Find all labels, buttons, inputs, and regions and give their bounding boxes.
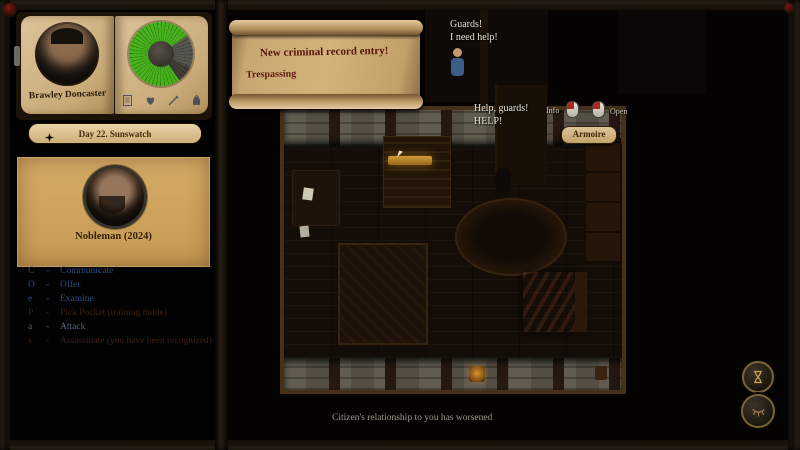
- scroll-roll-top: [229, 20, 423, 35]
- menu-label: Assassinate (you have been recognized): [60, 334, 214, 348]
- menu-label: Attack: [60, 320, 214, 334]
- side-table[interactable]: [292, 170, 340, 226]
- speech-line: Help, guards!: [474, 102, 528, 115]
- npc-guard-caller[interactable]: [450, 48, 464, 78]
- speech-line: I need help!: [450, 31, 498, 44]
- separator: -: [46, 278, 60, 292]
- menu-label: Pick Pocket (training mode): [60, 306, 214, 320]
- tooltip-open-label: Open: [610, 107, 627, 116]
- book-toolbar: [121, 94, 203, 107]
- paper-sheet[interactable]: [299, 226, 309, 238]
- bed-red-blanket[interactable]: [523, 272, 575, 332]
- speech-line: HELP!: [474, 115, 528, 128]
- speech-help: Help, guards! HELP!: [474, 102, 528, 128]
- player-portrait: [35, 22, 99, 86]
- menu-item-communicate[interactable]: C - Communicate: [18, 264, 214, 278]
- frame-corner-gem: [784, 3, 794, 13]
- mouse-split-line: [573, 102, 574, 109]
- south-wall: [284, 358, 622, 390]
- closed-eye-icon: [750, 403, 767, 420]
- frame-divider: [215, 0, 228, 450]
- bed-frame[interactable]: [575, 272, 587, 332]
- world-viewport[interactable]: New criminal record entry! Trespassing G…: [228, 10, 788, 440]
- tooltip-info-label: Info: [546, 106, 559, 115]
- menu-item-examine[interactable]: e - Examine: [18, 292, 214, 306]
- sleep-button[interactable]: [741, 394, 775, 428]
- npc-citizen[interactable]: [495, 168, 511, 194]
- wait-button[interactable]: [742, 361, 774, 393]
- crate-item[interactable]: [595, 366, 607, 380]
- work-table[interactable]: [383, 136, 451, 208]
- player-name: Brawley Doncaster: [21, 88, 114, 101]
- hourglass-icon: [750, 369, 766, 385]
- object-name-label: Armoire: [561, 126, 617, 144]
- frame-edge-right: [788, 0, 800, 450]
- left-sidebar: Brawley Doncaster: [10, 10, 215, 440]
- clock-hub: [148, 41, 174, 67]
- separator: -: [46, 334, 60, 348]
- menu-label: Offer: [60, 278, 214, 292]
- separator: -: [46, 306, 60, 320]
- game-screen: Brawley Doncaster: [0, 0, 800, 450]
- oval-rug[interactable]: [455, 198, 567, 276]
- hotkey: e: [28, 292, 46, 306]
- lantern-item[interactable]: [469, 366, 485, 382]
- hotkey: C: [28, 264, 46, 278]
- mouse-split-line: [599, 102, 600, 109]
- book-clasp-icon: [14, 46, 20, 66]
- status-message: Citizen's relationship to you has worsen…: [332, 413, 492, 423]
- hotkey: s: [28, 334, 46, 348]
- journal-icon[interactable]: [121, 94, 134, 107]
- date-banner: Day 22. Sunswatch: [28, 123, 202, 144]
- character-book: Brawley Doncaster: [16, 12, 212, 120]
- hotkey: P: [28, 306, 46, 320]
- notification-detail: Trespassing: [246, 69, 296, 81]
- quill-icon[interactable]: [167, 94, 180, 107]
- criminal-record-notification[interactable]: New criminal record entry! Trespassing: [232, 22, 420, 106]
- menu-item-assassinate[interactable]: s - Assassinate (you have been recognize…: [18, 334, 214, 348]
- frame-corner-gem: [3, 3, 17, 17]
- menu-label: Communicate: [60, 264, 214, 278]
- citizen-action-menu: C - Communicate O - Offer e - Examine P …: [18, 264, 214, 348]
- citizen-name: Nobleman (2024): [17, 231, 210, 242]
- speech-guards: Guards! I need help!: [450, 18, 498, 44]
- citizen-portrait: [83, 165, 147, 229]
- house-interior: [280, 106, 626, 394]
- paper-sheet[interactable]: [302, 187, 314, 200]
- separator: -: [46, 320, 60, 334]
- separator: -: [46, 292, 60, 306]
- selected-citizen-card: Nobleman (2024): [16, 156, 211, 268]
- speech-line: Guards!: [450, 18, 498, 31]
- heart-icon[interactable]: [144, 94, 157, 107]
- highlighted-item[interactable]: [388, 156, 432, 165]
- hotkey: O: [28, 278, 46, 292]
- mouse-open-icon: [592, 101, 605, 118]
- hotkey: a: [28, 320, 46, 334]
- scroll-roll-bottom: [229, 94, 423, 109]
- building-north-east: [618, 10, 706, 94]
- frame-edge-left: [0, 0, 10, 450]
- book-page-right: [115, 16, 208, 114]
- frame-edge-top: [0, 0, 800, 10]
- notification-title: New criminal record entry!: [260, 45, 389, 59]
- date-text: Day 22. Sunswatch: [29, 129, 201, 139]
- npc-body: [451, 58, 464, 76]
- daytime-clock: [129, 22, 193, 86]
- large-rug[interactable]: [338, 243, 428, 345]
- npc-head: [453, 48, 462, 57]
- separator: -: [46, 264, 60, 278]
- pouch-icon[interactable]: [190, 94, 203, 107]
- frame-edge-bottom: [0, 440, 800, 450]
- menu-label: Examine: [60, 292, 214, 306]
- menu-item-pickpocket[interactable]: P - Pick Pocket (training mode): [18, 306, 214, 320]
- menu-item-offer[interactable]: O - Offer: [18, 278, 214, 292]
- armoire-wardrobe[interactable]: [585, 138, 621, 264]
- mouse-info-icon: [566, 101, 579, 118]
- book-page-left: Brawley Doncaster: [21, 16, 114, 114]
- menu-item-attack[interactable]: a - Attack: [18, 320, 214, 334]
